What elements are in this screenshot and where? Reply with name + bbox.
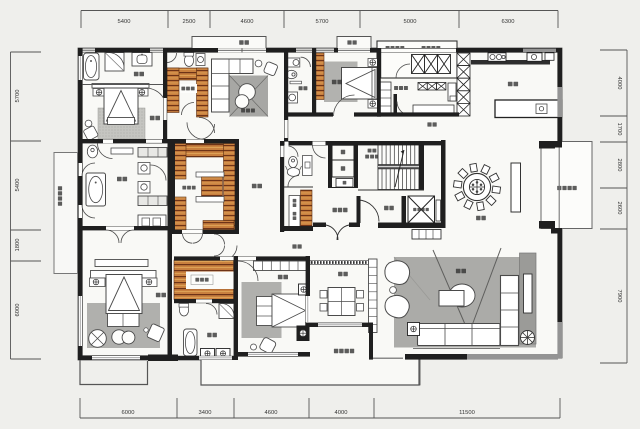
svg-text:5700: 5700 xyxy=(15,90,21,103)
svg-text:6300: 6300 xyxy=(502,19,515,25)
svg-text:4600: 4600 xyxy=(265,410,278,416)
svg-text:3400: 3400 xyxy=(199,410,212,416)
svg-text:7900: 7900 xyxy=(616,290,622,303)
svg-text:5000: 5000 xyxy=(404,19,417,25)
svg-text:6000: 6000 xyxy=(15,304,21,317)
svg-text:2600: 2600 xyxy=(616,202,622,215)
svg-text:2800: 2800 xyxy=(616,159,622,172)
svg-text:5400: 5400 xyxy=(118,19,131,25)
svg-text:5700: 5700 xyxy=(316,19,329,25)
svg-text:1800: 1800 xyxy=(15,239,21,252)
svg-text:6000: 6000 xyxy=(122,410,135,416)
svg-text:4600: 4600 xyxy=(241,19,254,25)
svg-text:2500: 2500 xyxy=(183,19,196,25)
svg-text:1700: 1700 xyxy=(616,123,622,136)
svg-text:4000: 4000 xyxy=(335,410,348,416)
svg-text:11500: 11500 xyxy=(459,410,475,416)
svg-text:4000: 4000 xyxy=(616,77,622,90)
svg-text:5400: 5400 xyxy=(15,179,21,192)
